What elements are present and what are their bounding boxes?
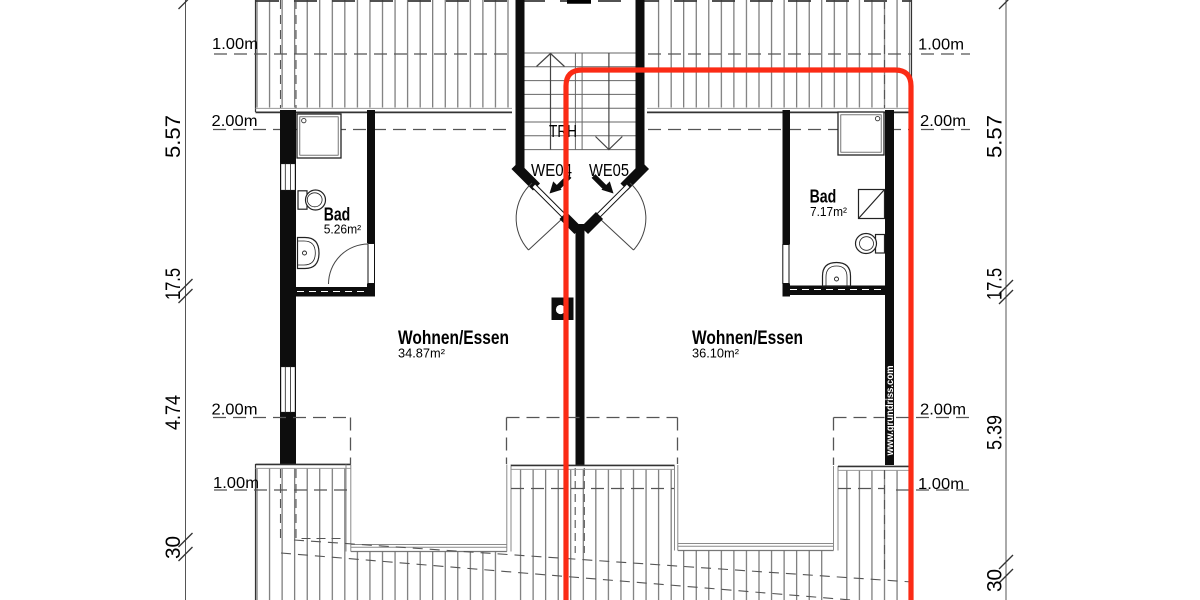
svg-text:1.00m: 1.00m: [918, 37, 964, 54]
svg-text:TRH: TRH: [549, 121, 577, 141]
svg-text:5.57: 5.57: [162, 115, 185, 158]
svg-text:1.00m: 1.00m: [212, 36, 258, 53]
svg-text:1.00m: 1.00m: [918, 476, 964, 493]
svg-text:36.10m²: 36.10m²: [692, 346, 740, 361]
svg-text:2.00m: 2.00m: [920, 402, 966, 419]
svg-text:2.00m: 2.00m: [212, 402, 258, 419]
svg-text:4.74: 4.74: [162, 395, 185, 430]
svg-text:7.17m²: 7.17m²: [810, 205, 847, 219]
svg-text:Bad: Bad: [810, 185, 837, 206]
svg-text:5.26m²: 5.26m²: [324, 223, 362, 237]
svg-text:34.87m²: 34.87m²: [398, 346, 446, 361]
svg-text:5.39: 5.39: [984, 415, 1007, 450]
svg-text:30: 30: [984, 569, 1007, 592]
svg-text:17.5: 17.5: [984, 268, 1007, 300]
svg-text:2.00m: 2.00m: [920, 113, 966, 130]
svg-text:www.grundriss.com: www.grundriss.com: [884, 366, 896, 457]
svg-text:5.57: 5.57: [984, 115, 1007, 158]
svg-text:1.00m: 1.00m: [213, 475, 259, 492]
svg-text:17.5: 17.5: [162, 268, 185, 300]
svg-text:30: 30: [162, 536, 185, 559]
svg-text:2.00m: 2.00m: [212, 113, 258, 130]
